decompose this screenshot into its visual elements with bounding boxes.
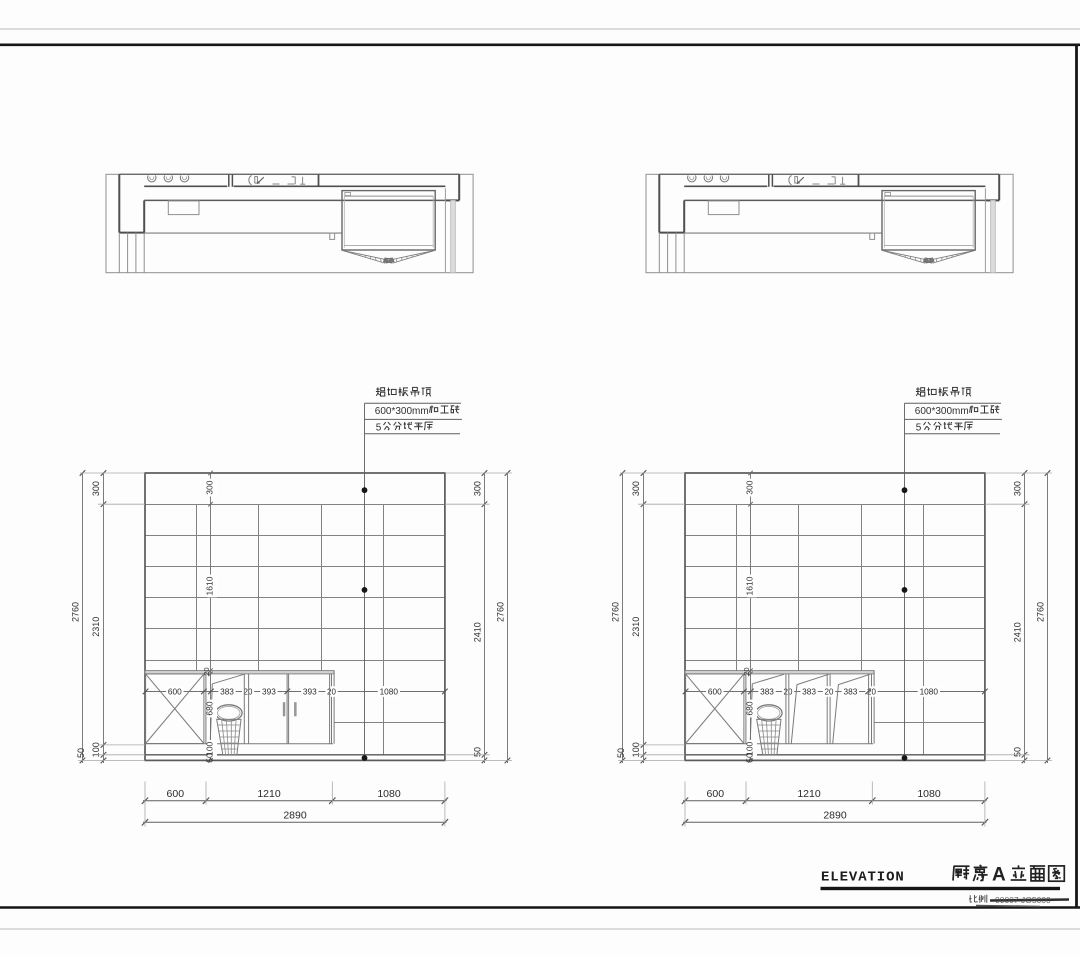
svg-text:300: 300 bbox=[473, 481, 483, 496]
svg-text:393: 393 bbox=[303, 686, 317, 696]
svg-text:2760: 2760 bbox=[71, 602, 81, 622]
svg-text:2760: 2760 bbox=[496, 602, 506, 622]
svg-text:20: 20 bbox=[825, 687, 834, 696]
svg-text:5: 5 bbox=[376, 423, 382, 434]
svg-text:50: 50 bbox=[76, 748, 86, 758]
svg-text:600: 600 bbox=[167, 788, 185, 800]
svg-text:1080: 1080 bbox=[377, 788, 401, 800]
svg-text:ELEVATION: ELEVATION bbox=[821, 870, 905, 886]
svg-text:393: 393 bbox=[262, 686, 276, 696]
svg-text:2890: 2890 bbox=[283, 810, 307, 822]
svg-text:A: A bbox=[992, 865, 1006, 886]
svg-text:680: 680 bbox=[205, 701, 215, 715]
svg-text:383: 383 bbox=[220, 686, 234, 696]
svg-text:1610: 1610 bbox=[205, 576, 215, 595]
svg-text:2410: 2410 bbox=[473, 622, 483, 642]
svg-text:1080: 1080 bbox=[380, 686, 399, 696]
svg-text:50: 50 bbox=[205, 753, 215, 763]
svg-text:20: 20 bbox=[202, 667, 211, 675]
svg-text:50: 50 bbox=[473, 747, 483, 757]
svg-text:600*300mm: 600*300mm bbox=[375, 406, 429, 417]
svg-text:300: 300 bbox=[205, 480, 215, 494]
svg-text:20: 20 bbox=[327, 687, 336, 696]
svg-text:600: 600 bbox=[168, 686, 182, 696]
svg-text:1210: 1210 bbox=[257, 788, 281, 800]
svg-text:383: 383 bbox=[802, 686, 816, 696]
svg-text:00007 JO5000: 00007 JO5000 bbox=[995, 895, 1051, 905]
svg-text:383: 383 bbox=[843, 686, 857, 696]
svg-text:2310: 2310 bbox=[91, 617, 101, 637]
svg-text:300: 300 bbox=[91, 481, 101, 496]
